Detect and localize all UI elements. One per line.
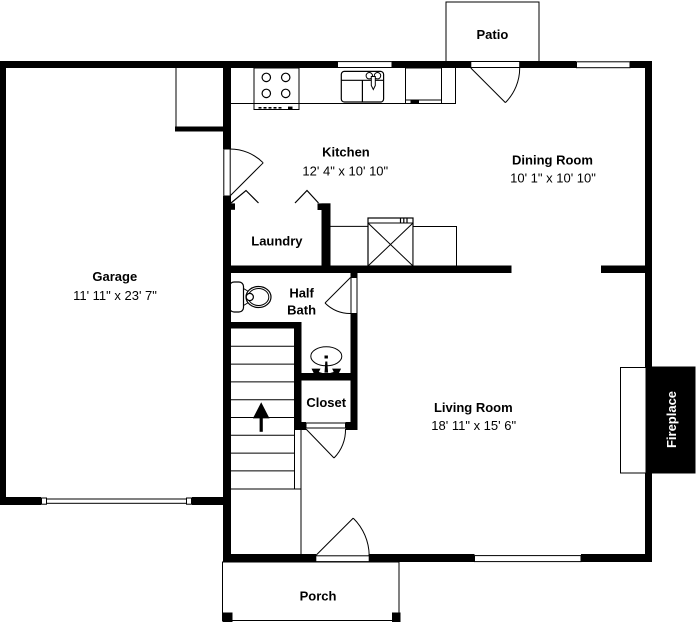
svg-text:Kitchen: Kitchen [322,145,370,160]
svg-text:Laundry: Laundry [251,234,303,249]
svg-text:Bath: Bath [287,302,316,317]
svg-text:Porch: Porch [300,589,337,604]
svg-text:Garage: Garage [92,269,137,284]
svg-text:Dining Room: Dining Room [512,153,593,168]
svg-text:Fireplace: Fireplace [664,391,679,448]
svg-text:10' 1" x 10' 10": 10' 1" x 10' 10" [510,171,596,186]
svg-text:Half: Half [289,286,314,301]
svg-text:11' 11" x 23' 7": 11' 11" x 23' 7" [73,288,157,303]
svg-text:18' 11" x 15' 6": 18' 11" x 15' 6" [431,418,516,433]
svg-text:Living Room: Living Room [434,400,513,415]
svg-text:12' 4" x 10' 10": 12' 4" x 10' 10" [302,164,388,179]
svg-text:Patio: Patio [477,27,509,42]
svg-text:Closet: Closet [306,395,346,410]
